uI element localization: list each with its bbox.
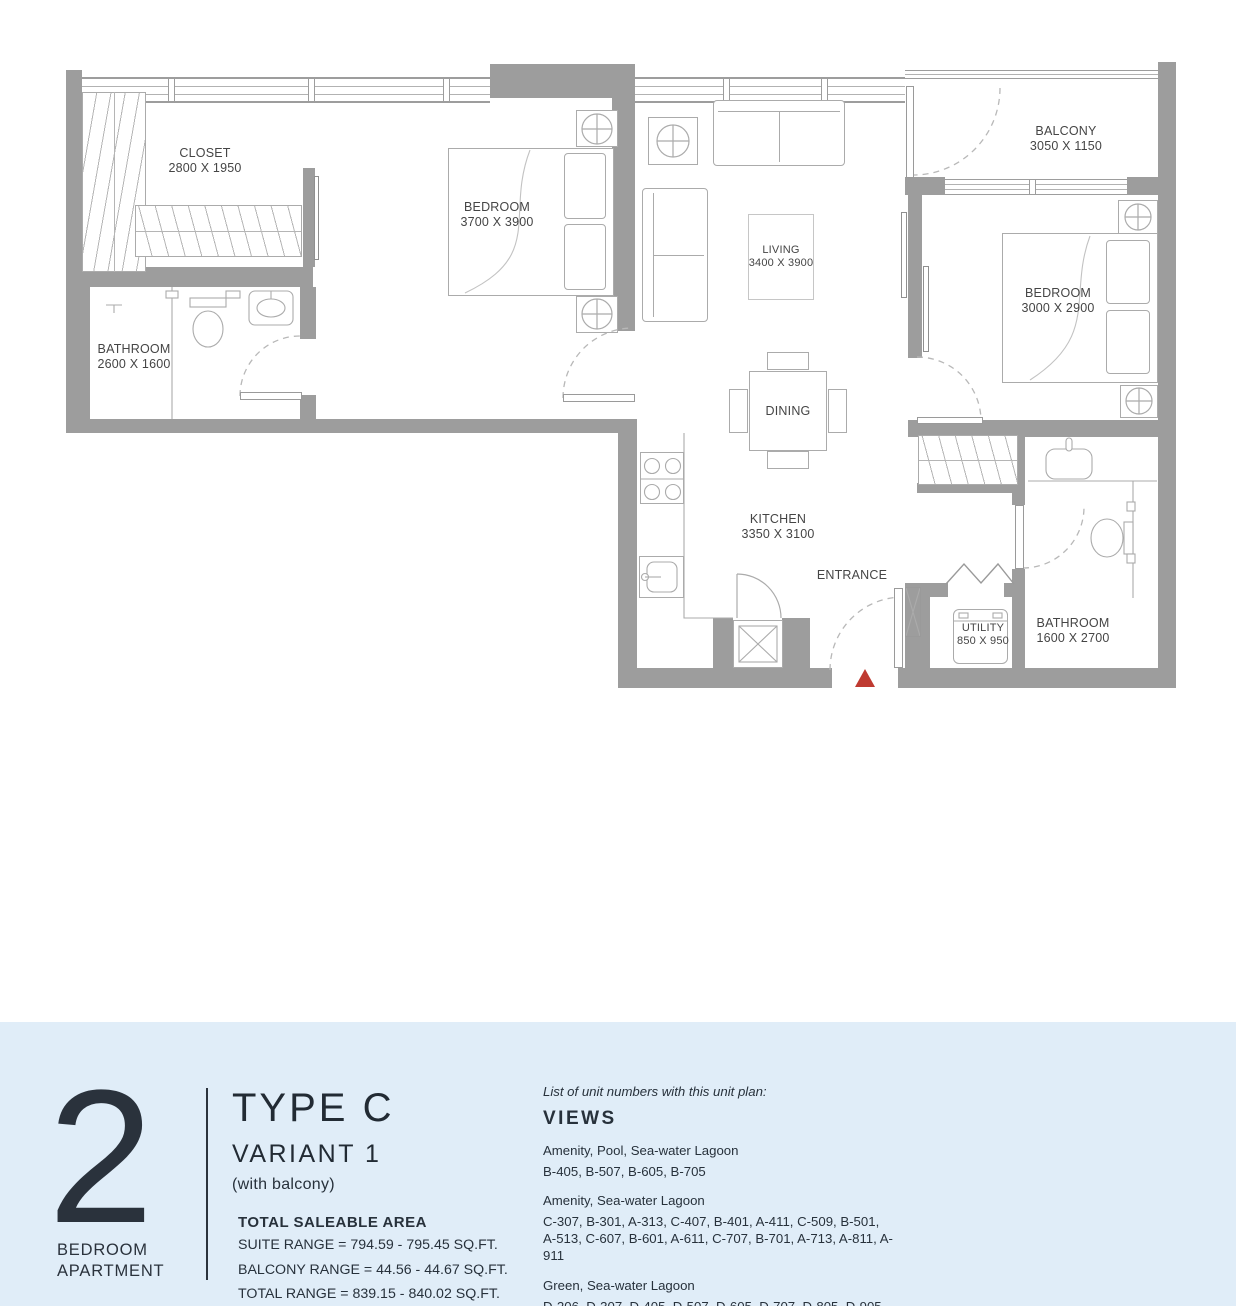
door-leaf bbox=[1015, 505, 1024, 569]
nightstand-icon bbox=[1118, 200, 1158, 234]
side-table-icon bbox=[648, 117, 698, 165]
wall-segment bbox=[490, 64, 635, 98]
window-mullion bbox=[443, 79, 450, 101]
dining-chair-icon bbox=[729, 389, 748, 433]
sliding-door-panel bbox=[901, 212, 907, 298]
view-units: C-307, B-301, A-313, C-407, B-401, A-411… bbox=[543, 1213, 895, 1264]
window-mullion bbox=[723, 79, 730, 101]
balcony-range: BALCONY RANGE = 44.56 - 44.67 SQ.FT. bbox=[238, 1261, 508, 1281]
bifold-door-icon bbox=[946, 564, 1014, 584]
view-name: Amenity, Sea-water Lagoon bbox=[543, 1193, 1143, 1208]
room-label-kitchen: KITCHEN 3350 X 3100 bbox=[716, 512, 840, 542]
room-dims: 2800 X 1950 bbox=[148, 161, 262, 176]
window-mullion bbox=[308, 79, 315, 101]
view-name: Amenity, Pool, Sea-water Lagoon bbox=[543, 1143, 1143, 1158]
variant-note: (with balcony) bbox=[232, 1176, 394, 1194]
bedroom-count: 2 bbox=[48, 1062, 154, 1252]
wardrobe-divider bbox=[114, 92, 115, 272]
entrance-column bbox=[905, 587, 921, 637]
wall-segment bbox=[898, 668, 1176, 688]
room-name: CLOSET bbox=[148, 146, 262, 161]
loveseat-cushion-divider bbox=[654, 255, 704, 256]
wall-segment bbox=[1018, 420, 1158, 437]
variant-title: VARIANT 1 bbox=[232, 1140, 394, 1169]
room-dims: 3400 X 3900 bbox=[748, 257, 814, 270]
shaft-icon bbox=[733, 620, 783, 668]
room-label-dining: DINING bbox=[766, 404, 811, 419]
pillow bbox=[564, 224, 606, 290]
window-mullion bbox=[821, 79, 828, 101]
door-leaf bbox=[894, 588, 903, 668]
saleable-area-block: TOTAL SALEABLE AREA SUITE RANGE = 794.59… bbox=[238, 1214, 508, 1305]
wall-segment bbox=[1004, 583, 1012, 597]
nightstand-icon bbox=[1120, 385, 1158, 418]
nightstand-icon bbox=[576, 110, 618, 147]
room-name: BEDROOM bbox=[996, 286, 1120, 301]
room-name: BALCONY bbox=[1004, 124, 1128, 139]
wall-segment bbox=[300, 395, 316, 419]
room-dims: 1600 X 2700 bbox=[1006, 631, 1140, 646]
room-label-balcony: BALCONY 3050 X 1150 bbox=[1004, 124, 1128, 154]
view-units: B-405, B-507, B-605, B-705 bbox=[543, 1163, 895, 1180]
wall-segment bbox=[66, 70, 82, 293]
entrance-marker-icon bbox=[855, 669, 875, 687]
kitchen-door-arc bbox=[737, 574, 781, 618]
bathroom2-fixtures bbox=[1028, 438, 1157, 598]
room-name: BEDROOM bbox=[438, 200, 556, 215]
wardrobe-icon bbox=[918, 435, 1018, 485]
room-name: LIVING bbox=[748, 244, 814, 257]
room-dims: 2600 X 1600 bbox=[92, 357, 176, 372]
room-dims: 3000 X 2900 bbox=[996, 301, 1120, 316]
floor-plan: DINING bbox=[0, 0, 1236, 1022]
area-title: TOTAL SALEABLE AREA bbox=[238, 1214, 508, 1231]
room-label-bathroom1: BATHROOM 2600 X 1600 bbox=[92, 342, 176, 372]
dining-chair-icon bbox=[767, 352, 809, 370]
pillow bbox=[1106, 310, 1150, 374]
loveseat-icon bbox=[642, 188, 708, 322]
room-name: ENTRANCE bbox=[810, 568, 894, 583]
info-panel: 2 BEDROOM APARTMENT TYPE C VARIANT 1 (wi… bbox=[0, 1022, 1236, 1306]
room-dims: 3350 X 3100 bbox=[716, 527, 840, 542]
view-group: Green, Sea-water Lagoon D-206, D-307, D-… bbox=[543, 1278, 1143, 1306]
wall-segment bbox=[1158, 62, 1176, 672]
view-group: Amenity, Sea-water Lagoon C-307, B-301, … bbox=[543, 1193, 1143, 1264]
room-label-entrance: ENTRANCE bbox=[810, 568, 894, 583]
room-name: BATHROOM bbox=[92, 342, 176, 357]
room-name: KITCHEN bbox=[716, 512, 840, 527]
wall-segment bbox=[930, 583, 948, 597]
bedroom-label-line: BEDROOM bbox=[57, 1240, 164, 1261]
window bbox=[945, 179, 1127, 195]
room-label-bedroom1: BEDROOM 3700 X 3900 bbox=[438, 200, 556, 230]
dining-table-icon: DINING bbox=[749, 371, 827, 451]
kitchen-sink-icon bbox=[639, 556, 684, 598]
total-range: TOTAL RANGE = 839.15 - 840.02 SQ.FT. bbox=[238, 1285, 508, 1305]
stove-icon bbox=[640, 452, 684, 504]
door-leaf bbox=[563, 394, 635, 402]
door-leaf bbox=[240, 392, 302, 400]
wall-segment bbox=[713, 618, 733, 668]
wall-segment bbox=[618, 668, 832, 688]
dining-chair-icon bbox=[767, 451, 809, 469]
sofa-icon bbox=[713, 100, 845, 166]
door-leaf bbox=[917, 417, 983, 424]
wall-segment bbox=[908, 193, 922, 358]
view-group: Amenity, Pool, Sea-water Lagoon B-405, B… bbox=[543, 1143, 1143, 1180]
pillow bbox=[564, 153, 606, 219]
sliding-door-panel bbox=[923, 266, 929, 352]
dining-chair-icon bbox=[828, 389, 847, 433]
suite-range: SUITE RANGE = 794.59 - 795.45 SQ.FT. bbox=[238, 1236, 508, 1256]
room-label-bathroom2: BATHROOM 1600 X 2700 bbox=[1006, 616, 1140, 646]
window-mullion bbox=[1029, 180, 1036, 194]
sliding-door-panel bbox=[314, 176, 319, 260]
views-title: VIEWS bbox=[543, 1108, 1143, 1130]
type-block: TYPE C VARIANT 1 (with balcony) bbox=[232, 1086, 394, 1194]
room-dims: 3700 X 3900 bbox=[438, 215, 556, 230]
closet-rack-icon bbox=[135, 205, 302, 257]
room-label-closet: CLOSET 2800 X 1950 bbox=[148, 146, 262, 176]
wall-segment bbox=[905, 177, 945, 195]
balcony-railing bbox=[905, 70, 1158, 79]
room-dims: 3050 X 1150 bbox=[1004, 139, 1128, 154]
view-units: D-206, D-307, D-405, D-507, D-605, D-707… bbox=[543, 1298, 895, 1306]
bedroom-apartment-label: BEDROOM APARTMENT bbox=[57, 1240, 164, 1281]
door-leaf bbox=[906, 86, 914, 178]
views-intro: List of unit numbers with this unit plan… bbox=[543, 1084, 1143, 1099]
room-name: BATHROOM bbox=[1006, 616, 1140, 631]
type-title: TYPE C bbox=[232, 1086, 394, 1131]
wall-segment bbox=[1127, 177, 1160, 195]
wall-segment bbox=[618, 433, 637, 688]
apartment-label-line: APARTMENT bbox=[57, 1261, 164, 1282]
room-label-living: LIVING 3400 X 3900 bbox=[748, 244, 814, 270]
divider bbox=[206, 1088, 208, 1280]
sofa-cushion-divider bbox=[779, 112, 780, 162]
floor-plan-page: DINING bbox=[0, 0, 1236, 1306]
nightstand-icon bbox=[576, 296, 618, 333]
room-label-bedroom2: BEDROOM 3000 X 2900 bbox=[996, 286, 1120, 316]
wall-segment bbox=[66, 287, 90, 433]
views-block: List of unit numbers with this unit plan… bbox=[543, 1084, 1143, 1306]
view-name: Green, Sea-water Lagoon bbox=[543, 1278, 1143, 1293]
wall-segment bbox=[782, 618, 810, 670]
window-mullion bbox=[168, 79, 175, 101]
wall-segment bbox=[300, 287, 316, 339]
wall-segment bbox=[66, 419, 637, 433]
